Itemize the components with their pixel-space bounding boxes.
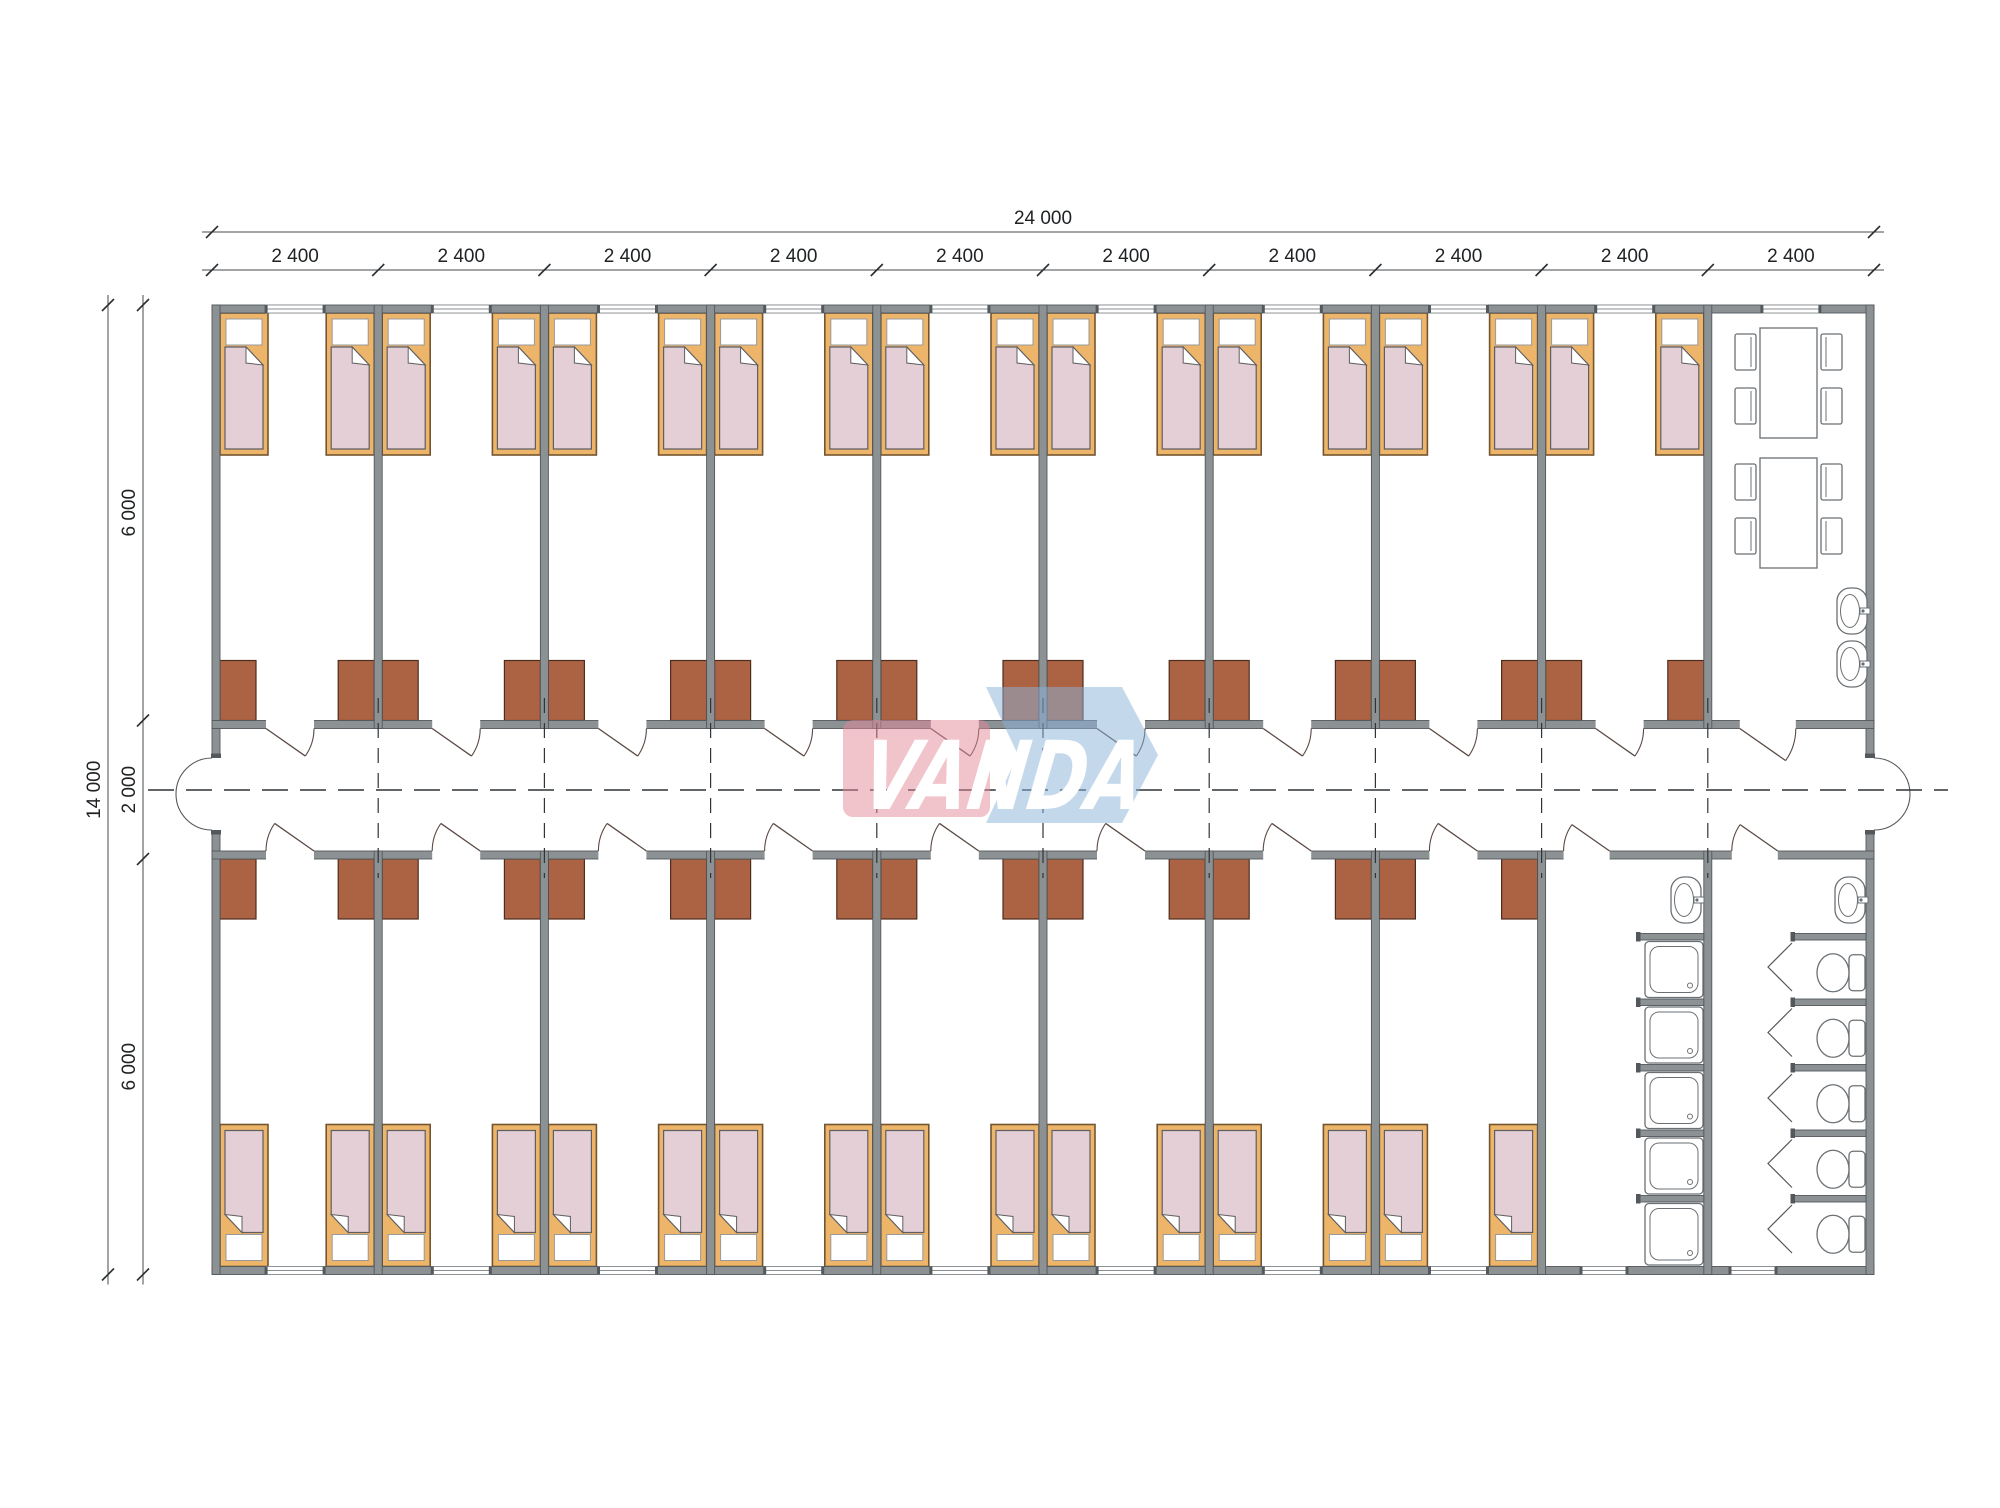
pillow (997, 1235, 1033, 1261)
partition-cap (1636, 1194, 1641, 1204)
pillow (1219, 1235, 1255, 1261)
dimension-label-height-segment: 2 000 (119, 766, 140, 814)
door-opening (1097, 851, 1145, 860)
door-leaf (266, 729, 305, 757)
washbasin (1835, 877, 1868, 923)
shower-tray (1645, 942, 1703, 998)
bed (1656, 313, 1704, 455)
door-swing-arc (305, 729, 314, 757)
interior-wall-top (1538, 305, 1546, 729)
window-jamb (1154, 305, 1157, 313)
pillow (388, 1235, 424, 1261)
window (1096, 1267, 1157, 1275)
chair-seat (1735, 518, 1756, 554)
shower-tray (1645, 1138, 1703, 1194)
door-swing-arc (432, 823, 441, 851)
window (1729, 1267, 1778, 1275)
pillow (554, 1235, 590, 1261)
wardrobe (837, 859, 873, 919)
toilet-tank (1849, 1086, 1865, 1122)
pillow (887, 1235, 923, 1261)
wardrobe (1335, 661, 1371, 721)
door-swing-arc (1786, 729, 1796, 761)
door-leaf (275, 823, 314, 851)
door-swing-arc (638, 729, 647, 757)
dimension-label-module: 2 400 (1269, 246, 1317, 267)
tray-outer (1645, 942, 1703, 998)
room-door (1732, 825, 1778, 860)
window (265, 305, 326, 313)
pillow (332, 1235, 368, 1261)
interior-wall-bottom (1205, 851, 1213, 1275)
window-jamb (1594, 305, 1597, 313)
door-opening (266, 851, 314, 860)
toilet-stall-partition (1793, 1065, 1866, 1072)
pillow (332, 319, 368, 345)
window-jamb (431, 1267, 434, 1275)
interior-wall-top (374, 305, 382, 729)
window-jamb (987, 305, 990, 313)
door-swing-arc (176, 794, 212, 830)
shower-tray (1645, 1204, 1703, 1266)
toilet-stall-partition (1793, 1196, 1866, 1203)
interior-wall-bottom (873, 851, 881, 1275)
interior-wall-bottom (1039, 851, 1047, 1275)
toilet-stall-door (1768, 1009, 1792, 1057)
door-opening (598, 851, 646, 860)
wardrobe (220, 859, 256, 919)
bed (659, 313, 707, 455)
shower-partition (1638, 1130, 1704, 1137)
toilet-stall-door (1768, 1205, 1792, 1253)
pillow (1163, 1235, 1199, 1261)
wardrobe (338, 661, 374, 721)
wardrobe (1379, 661, 1415, 721)
window-jamb (265, 1267, 268, 1275)
toilet-stall-partition (1793, 1130, 1866, 1137)
chair-seat (1821, 518, 1842, 554)
door-swing-arc (472, 729, 481, 757)
tray-outer (1645, 1007, 1703, 1063)
washbasin (1671, 877, 1704, 923)
basin-tap-handle (1861, 609, 1864, 612)
shower-tray (1645, 1073, 1703, 1129)
window-jamb (929, 305, 932, 313)
pillow (887, 319, 923, 345)
wardrobe (1169, 661, 1205, 721)
entrance-opening (1865, 758, 1875, 830)
tray-outer (1645, 1204, 1703, 1266)
window-jamb (1096, 1267, 1099, 1275)
window (1096, 305, 1157, 313)
window-jamb (1096, 305, 1099, 313)
pillow (1163, 319, 1199, 345)
chair-seat (1735, 388, 1756, 424)
door-opening (432, 851, 480, 860)
interior-wall-bottom (374, 851, 382, 1275)
partition-cap (1791, 1129, 1796, 1139)
shower-partition (1638, 999, 1704, 1006)
bed (1490, 1125, 1538, 1267)
window (1428, 1267, 1489, 1275)
wardrobe (671, 859, 707, 919)
pillow (498, 1235, 534, 1261)
bed (326, 313, 374, 455)
door-swing-arc (266, 823, 275, 851)
shower-tray (1645, 1007, 1703, 1063)
bed (1157, 1125, 1205, 1267)
toilet-stall-door (1768, 943, 1792, 991)
partition-cap (1791, 932, 1796, 942)
wardrobe (1335, 859, 1371, 919)
interior-wall-bottom (1704, 851, 1712, 1275)
tray-outer (1645, 1138, 1703, 1194)
toilet (1817, 1215, 1865, 1253)
door-opening (1732, 851, 1778, 860)
bed (492, 313, 540, 455)
entrance-jamb (1865, 754, 1875, 759)
wardrobe (1213, 661, 1249, 721)
bed (1323, 313, 1371, 455)
fixture-layer (1636, 328, 1870, 1265)
toilet-tank (1849, 1216, 1865, 1252)
dimension-label-total-height: 14 000 (84, 761, 105, 819)
toilet-stall-door (1768, 1074, 1792, 1122)
window-jamb (1760, 305, 1763, 313)
basin-tap-handle (1859, 898, 1862, 901)
wardrobe (1169, 859, 1205, 919)
bed (881, 1125, 929, 1267)
bed (715, 313, 763, 455)
wardrobe (881, 661, 917, 721)
wardrobe (715, 661, 751, 721)
dimension-label-module: 2 400 (438, 246, 486, 267)
window-jamb (655, 305, 658, 313)
partition-cap (1791, 1063, 1796, 1073)
pillow (1496, 1235, 1532, 1261)
bed (1047, 313, 1095, 455)
wardrobe (382, 661, 418, 721)
door-leaf (1438, 823, 1477, 851)
interior-wall-top (873, 305, 881, 729)
door-opening (1429, 720, 1477, 729)
room-door (1740, 720, 1796, 761)
toilet-bowl (1817, 954, 1849, 992)
bed (1323, 1125, 1371, 1267)
pillow (665, 1235, 701, 1261)
bed (1379, 313, 1427, 455)
window-jamb (431, 305, 434, 313)
dimension-label-module: 2 400 (1435, 246, 1483, 267)
door-leaf (765, 729, 804, 757)
window-jamb (323, 305, 326, 313)
interior-wall-top (1371, 305, 1379, 729)
pillow (1662, 319, 1698, 345)
door-leaf (1272, 823, 1311, 851)
door-opening (266, 720, 314, 729)
wardrobe (837, 661, 873, 721)
door-swing-arc (1874, 758, 1910, 794)
entrance-double-door (176, 754, 221, 835)
window-jamb (655, 1267, 658, 1275)
window-jamb (1729, 1267, 1732, 1275)
wardrobe (548, 859, 584, 919)
window (597, 1267, 658, 1275)
bed (1379, 1125, 1427, 1267)
pillow (1053, 319, 1089, 345)
room-door (1263, 720, 1311, 756)
door-leaf (1263, 729, 1302, 757)
door-swing-arc (1635, 729, 1644, 757)
pillow (1385, 1235, 1421, 1261)
partition-cap (1791, 998, 1796, 1008)
wardrobe (504, 859, 540, 919)
wardrobe (1502, 661, 1538, 721)
wardrobe (1546, 661, 1582, 721)
dimension-label-height-segment: 6 000 (119, 489, 140, 537)
door-opening (1740, 720, 1796, 729)
dimension-label-module: 2 400 (1767, 246, 1815, 267)
toilet (1817, 1085, 1865, 1123)
window (1262, 305, 1323, 313)
pillow (226, 1235, 262, 1261)
window-jamb (1262, 305, 1265, 313)
partition-cap (1791, 1194, 1796, 1204)
chair (1735, 518, 1756, 554)
partition-cap (1636, 998, 1641, 1008)
window-jamb (1652, 305, 1655, 313)
window (763, 305, 824, 313)
wardrobe (548, 661, 584, 721)
pillow (1053, 1235, 1089, 1261)
door-opening (1564, 851, 1610, 860)
door-leaf (432, 729, 471, 757)
chair (1735, 334, 1756, 370)
window (265, 1267, 326, 1275)
entrance-jamb (211, 830, 221, 835)
door-opening (765, 851, 813, 860)
window-jamb (1775, 1267, 1778, 1275)
bed (548, 313, 596, 455)
bed (1213, 313, 1261, 455)
chair (1821, 388, 1842, 424)
door-opening (1263, 851, 1311, 860)
window-jamb (1262, 1267, 1265, 1275)
washbasin (1837, 641, 1870, 687)
bed (1546, 313, 1594, 455)
room-door (598, 720, 646, 756)
pillow (997, 319, 1033, 345)
toilet-stall-door (1768, 1140, 1792, 1188)
wardrobe (1003, 859, 1039, 919)
interior-wall-bottom (707, 851, 715, 1275)
door-swing-arc (1303, 729, 1312, 757)
window (1760, 305, 1821, 313)
bed (881, 313, 929, 455)
window (763, 1267, 824, 1275)
door-leaf (1596, 729, 1635, 757)
toilet-bowl (1817, 1215, 1849, 1253)
window-jamb (489, 305, 492, 313)
washbasin (1837, 588, 1870, 634)
toilet-bowl (1817, 1019, 1849, 1057)
window-jamb (489, 1267, 492, 1275)
door-swing-arc (176, 758, 212, 794)
bed (492, 1125, 540, 1267)
bed (715, 1125, 763, 1267)
wardrobe (338, 859, 374, 919)
interior-wall-top (1205, 305, 1213, 729)
partition-cap (1636, 1063, 1641, 1073)
interior-wall-bottom (540, 851, 548, 1275)
bed (382, 313, 430, 455)
window-jamb (1428, 305, 1431, 313)
window (431, 1267, 492, 1275)
chair-seat (1821, 464, 1842, 500)
window-jamb (763, 305, 766, 313)
chair-seat (1821, 388, 1842, 424)
door-opening (931, 851, 979, 860)
bed (1213, 1125, 1261, 1267)
dimension-label-module: 2 400 (936, 246, 984, 267)
window-jamb (821, 1267, 824, 1275)
window-jamb (1486, 305, 1489, 313)
interior-wall-top (1039, 305, 1047, 729)
window-jamb (1626, 1267, 1629, 1275)
wardrobe (1047, 859, 1083, 919)
door-opening (1263, 720, 1311, 729)
door-leaf (607, 823, 646, 851)
window (929, 1267, 990, 1275)
door-swing-arc (1263, 823, 1272, 851)
wardrobe (671, 661, 707, 721)
window (431, 305, 492, 313)
window-jamb (597, 305, 600, 313)
bed (991, 1125, 1039, 1267)
door-swing-arc (804, 729, 813, 757)
window (597, 305, 658, 313)
toilet-stall-partition (1793, 934, 1866, 941)
window (1594, 305, 1655, 313)
window-jamb (929, 1267, 932, 1275)
pillow (1496, 319, 1532, 345)
bed (220, 313, 268, 455)
entrance-double-door (1865, 754, 1910, 835)
bed (825, 313, 873, 455)
chair (1735, 464, 1756, 500)
interior-wall-top (707, 305, 715, 729)
pillow (665, 319, 701, 345)
window-jamb (1320, 305, 1323, 313)
chair (1821, 464, 1842, 500)
wardrobe (1379, 859, 1415, 919)
interior-wall-top (540, 305, 548, 729)
wardrobe (382, 859, 418, 919)
toilet-bowl (1817, 1150, 1849, 1188)
wardrobe (220, 661, 256, 721)
pillow (554, 319, 590, 345)
window-jamb (1486, 1267, 1489, 1275)
tray-outer (1645, 1073, 1703, 1129)
room-door (1263, 823, 1311, 859)
door-swing-arc (1564, 825, 1572, 851)
window-jamb (821, 305, 824, 313)
door-swing-arc (765, 823, 774, 851)
wardrobe (881, 859, 917, 919)
toilet-tank (1849, 955, 1865, 991)
door-leaf (1429, 729, 1468, 757)
entrance-jamb (1865, 830, 1875, 835)
door-swing-arc (1429, 823, 1438, 851)
bed (825, 1125, 873, 1267)
dimension-label-module: 2 400 (1102, 246, 1150, 267)
toilet (1817, 1150, 1865, 1188)
partition-cap (1636, 1129, 1641, 1139)
dimension-label-module: 2 400 (604, 246, 652, 267)
window-jamb (597, 1267, 600, 1275)
room-door (266, 720, 314, 756)
door-opening (765, 720, 813, 729)
door-leaf (1740, 825, 1778, 851)
pillow (1219, 319, 1255, 345)
basin-tap-handle (1861, 662, 1864, 665)
window (1262, 1267, 1323, 1275)
door-opening (432, 720, 480, 729)
room-door (1429, 720, 1477, 756)
door-swing-arc (1874, 794, 1910, 830)
toilet-bowl (1817, 1085, 1849, 1123)
room-door (432, 720, 480, 756)
bed (1490, 313, 1538, 455)
door-leaf (441, 823, 480, 851)
floor-plan-canvas: 24 0002 4002 4002 4002 4002 4002 4002 40… (0, 0, 2000, 1508)
room-door (1564, 825, 1610, 860)
window-jamb (987, 1267, 990, 1275)
window (929, 305, 990, 313)
shower-partition (1638, 1065, 1704, 1072)
bed (220, 1125, 268, 1267)
toilet-tank (1849, 1151, 1865, 1187)
room-door (598, 823, 646, 859)
window-jamb (1580, 1267, 1583, 1275)
pillow (1552, 319, 1588, 345)
room-door (432, 823, 480, 859)
bed (548, 1125, 596, 1267)
chair (1821, 334, 1842, 370)
dimension-label-module: 2 400 (1601, 246, 1649, 267)
door-leaf (773, 823, 812, 851)
partition-cap (1636, 932, 1641, 942)
window-jamb (763, 1267, 766, 1275)
window-jamb (265, 305, 268, 313)
window-jamb (1818, 305, 1821, 313)
pillow (1385, 319, 1421, 345)
entrance-jamb (211, 754, 221, 759)
wardrobe (715, 859, 751, 919)
wardrobe (1668, 661, 1704, 721)
pillow (226, 319, 262, 345)
window (1428, 305, 1489, 313)
pillow (721, 319, 757, 345)
chair-seat (1821, 334, 1842, 370)
door-opening (598, 720, 646, 729)
pillow (388, 319, 424, 345)
room-door (765, 720, 813, 756)
window-jamb (1428, 1267, 1431, 1275)
shower-partition (1638, 1196, 1704, 1203)
window (1580, 1267, 1629, 1275)
pillow (1329, 319, 1365, 345)
